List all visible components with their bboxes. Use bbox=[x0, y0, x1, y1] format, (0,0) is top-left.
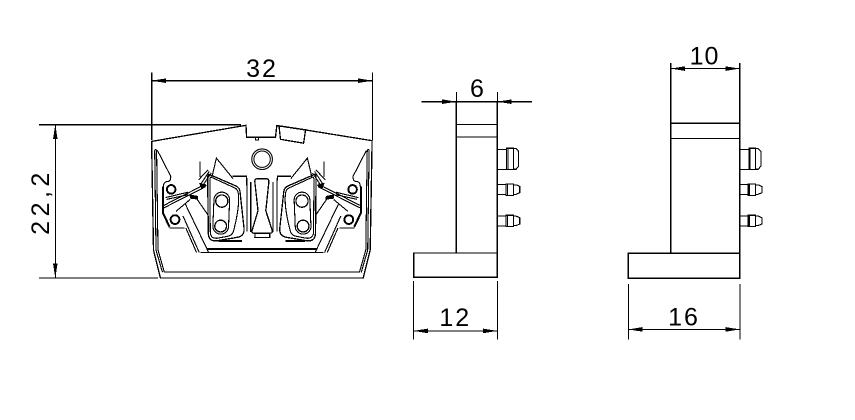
svg-text:6: 6 bbox=[470, 75, 484, 103]
svg-text:10: 10 bbox=[690, 43, 720, 71]
svg-text:32: 32 bbox=[246, 55, 278, 83]
svg-text:16: 16 bbox=[668, 304, 700, 332]
svg-text:22,2: 22,2 bbox=[27, 168, 55, 235]
svg-text:12: 12 bbox=[439, 304, 471, 332]
